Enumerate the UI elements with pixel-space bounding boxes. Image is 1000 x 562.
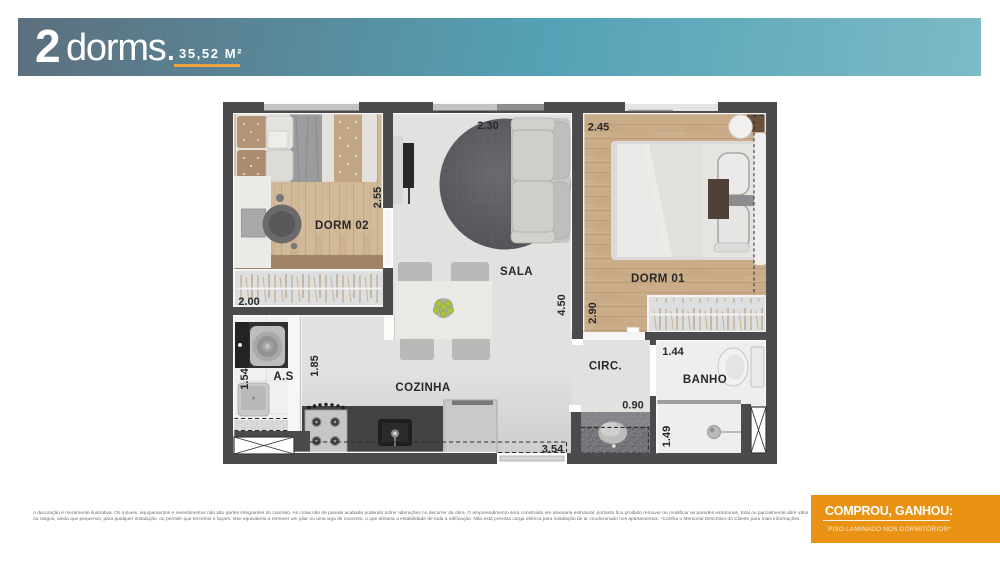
- svg-text:2.90: 2.90: [587, 302, 599, 323]
- svg-text:1.85: 1.85: [309, 355, 321, 376]
- svg-text:COZINHA: COZINHA: [395, 382, 450, 394]
- svg-text:3.54: 3.54: [542, 444, 564, 456]
- svg-text:A.S: A.S: [273, 371, 293, 383]
- svg-text:2.00: 2.00: [238, 296, 259, 308]
- svg-text:1.54: 1.54: [239, 367, 251, 389]
- svg-text:BANHO: BANHO: [683, 374, 727, 386]
- svg-text:1.44: 1.44: [662, 346, 684, 358]
- svg-text:0.90: 0.90: [622, 400, 643, 412]
- svg-text:2.45: 2.45: [588, 122, 609, 134]
- svg-text:2.55: 2.55: [372, 187, 384, 208]
- svg-text:SALA: SALA: [500, 266, 533, 278]
- svg-text:DORM 02: DORM 02: [315, 220, 369, 232]
- svg-text:CIRC.: CIRC.: [589, 361, 622, 373]
- svg-text:1.49: 1.49: [661, 426, 673, 447]
- svg-text:4.50: 4.50: [556, 294, 568, 315]
- svg-text:2.30: 2.30: [477, 120, 498, 132]
- svg-text:DORM 01: DORM 01: [631, 273, 685, 285]
